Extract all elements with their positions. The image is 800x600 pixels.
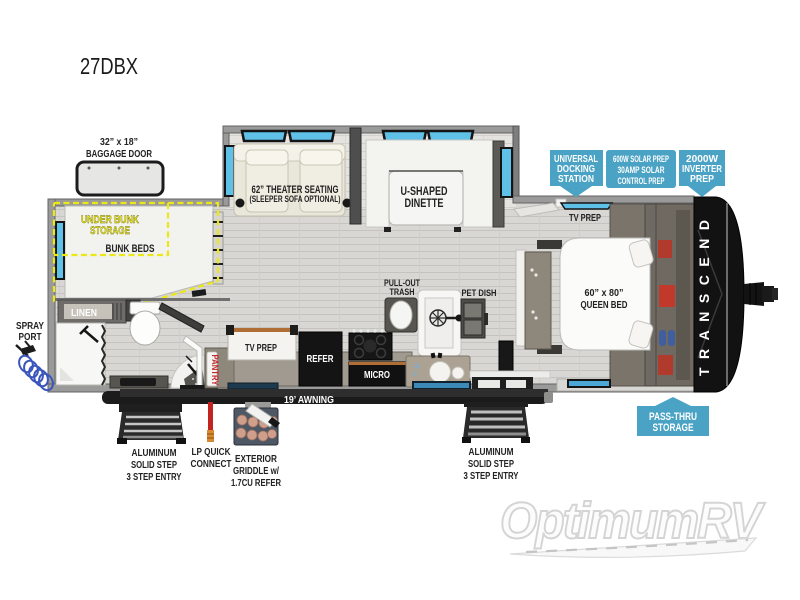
svg-text:REFER: REFER [307, 353, 334, 365]
svg-text:TRANSCEND: TRANSCEND [696, 214, 712, 376]
svg-text:LP QUICK: LP QUICK [192, 446, 231, 458]
svg-text:TRASH: TRASH [390, 287, 415, 298]
svg-text:3 STEP ENTRY: 3 STEP ENTRY [464, 470, 519, 482]
svg-text:QUEEN BED: QUEEN BED [581, 299, 628, 311]
svg-text:SOLID STEP: SOLID STEP [131, 459, 177, 471]
svg-text:SOLID STEP: SOLID STEP [468, 458, 514, 470]
svg-text:GRIDDLE w/: GRIDDLE w/ [233, 465, 279, 477]
svg-text:EXTERIOR: EXTERIOR [235, 453, 277, 465]
svg-text:3 STEP ENTRY: 3 STEP ENTRY [127, 471, 182, 483]
svg-text:STORAGE: STORAGE [90, 225, 130, 237]
svg-text:60” x 80”: 60” x 80” [585, 287, 624, 299]
svg-text:19’ AWNING: 19’ AWNING [284, 395, 334, 406]
svg-text:PORT: PORT [19, 332, 42, 343]
svg-text:PANTRY: PANTRY [209, 355, 220, 387]
svg-text:(SLEEPER SOFA OPTIONAL): (SLEEPER SOFA OPTIONAL) [250, 194, 341, 204]
svg-text:BAGGAGE DOOR: BAGGAGE DOOR [86, 148, 152, 160]
svg-text:MICRO: MICRO [364, 369, 390, 381]
svg-text:27DBX: 27DBX [80, 53, 138, 79]
svg-text:PREP: PREP [690, 174, 714, 185]
svg-text:SPRAY: SPRAY [16, 321, 44, 332]
svg-text:TV PREP: TV PREP [569, 212, 601, 224]
svg-text:LINEN: LINEN [71, 308, 97, 319]
svg-text:PET DISH: PET DISH [462, 288, 497, 299]
svg-text:CONNECT: CONNECT [191, 458, 232, 470]
svg-text:ALUMINUM: ALUMINUM [469, 446, 514, 458]
svg-text:1.7CU REFER: 1.7CU REFER [231, 477, 281, 489]
svg-text:STORAGE: STORAGE [653, 422, 694, 434]
svg-text:30AMP SOLAR: 30AMP SOLAR [618, 165, 665, 175]
svg-text:ALUMINUM: ALUMINUM [132, 447, 177, 459]
svg-text:U-SHAPED: U-SHAPED [401, 186, 448, 198]
svg-text:STATION: STATION [558, 174, 594, 185]
svg-text:600W SOLAR PREP: 600W SOLAR PREP [613, 154, 669, 164]
svg-text:32” x 18”: 32” x 18” [100, 136, 138, 148]
svg-text:CONTROL PREP: CONTROL PREP [618, 176, 665, 186]
svg-text:TV PREP: TV PREP [245, 342, 277, 354]
svg-text:DINETTE: DINETTE [405, 198, 444, 210]
svg-text:BUNK BEDS: BUNK BEDS [106, 243, 155, 255]
